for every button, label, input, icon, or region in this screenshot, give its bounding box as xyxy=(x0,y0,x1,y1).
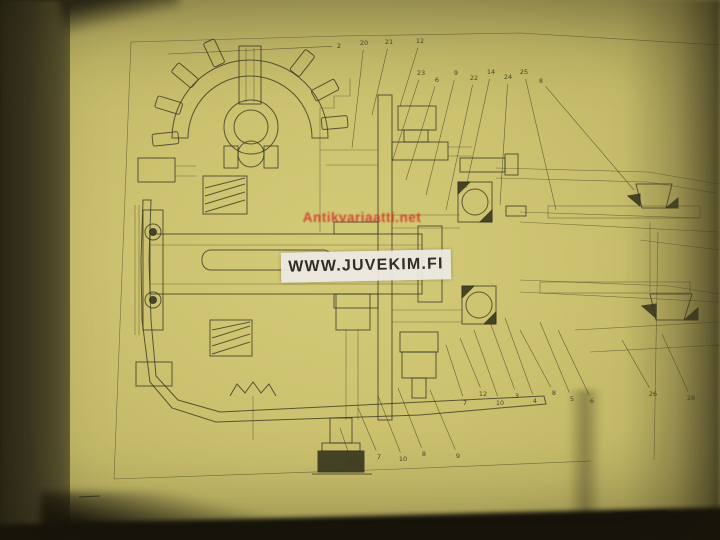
svg-text:8: 8 xyxy=(539,77,543,85)
watermark-red-text: Antikvariaatti.net xyxy=(274,210,450,230)
svg-text:6: 6 xyxy=(435,76,439,84)
svg-text:10: 10 xyxy=(399,455,407,463)
bolt-head-bottom xyxy=(402,352,436,378)
svg-text:9: 9 xyxy=(456,452,460,460)
svg-text:3: 3 xyxy=(515,392,519,400)
coil-spring-upper xyxy=(203,176,247,214)
svg-text:25: 25 xyxy=(520,68,528,76)
watermark-site-label: WWW.JUVEKIM.FI xyxy=(281,249,452,283)
svg-text:1: 1 xyxy=(350,459,354,467)
coil-spring-lower xyxy=(210,320,252,356)
svg-text:10: 10 xyxy=(496,399,504,407)
svg-text:9: 9 xyxy=(454,69,458,77)
left-flange-bearings xyxy=(136,158,196,386)
right-page-curve-shadow xyxy=(625,0,720,540)
svg-text:21: 21 xyxy=(385,38,393,46)
svg-text:7: 7 xyxy=(377,453,381,461)
svg-text:4: 4 xyxy=(533,397,537,405)
svg-text:12: 12 xyxy=(479,390,487,398)
bolt-upper-left xyxy=(138,158,175,182)
svg-text:20: 20 xyxy=(360,39,368,47)
bolt-mid xyxy=(460,158,505,172)
drain-plug xyxy=(318,451,364,472)
svg-text:2: 2 xyxy=(337,42,341,50)
housing-outline xyxy=(135,78,546,422)
svg-text:14: 14 xyxy=(487,68,495,76)
book-photo: 2202112236922142425871210348562628171089… xyxy=(0,0,720,540)
lower-hub-drain-plug xyxy=(230,294,372,474)
bolt-lower-left xyxy=(136,362,172,386)
finned-housing xyxy=(152,39,348,168)
svg-text:8: 8 xyxy=(552,389,556,397)
svg-text:22: 22 xyxy=(470,74,478,82)
svg-text:23: 23 xyxy=(417,69,425,77)
svg-text:8: 8 xyxy=(422,450,426,458)
svg-text:12: 12 xyxy=(416,37,424,45)
svg-text:24: 24 xyxy=(504,73,512,81)
svg-text:7: 7 xyxy=(463,399,467,407)
